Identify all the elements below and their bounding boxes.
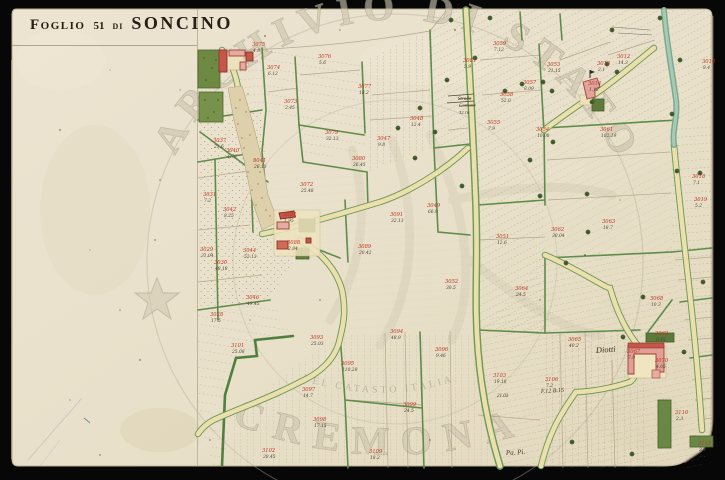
- parcel-number: 3052: [445, 279, 458, 285]
- parcel-area: 31.04: [201, 254, 214, 259]
- parcel-area: 5.2: [695, 204, 702, 209]
- parcel-area: 1.95: [284, 219, 294, 224]
- parcel-number: 3097: [302, 387, 316, 393]
- tree-icon: [631, 454, 632, 455]
- parcel-number: 3099: [403, 402, 417, 408]
- parcel-number: 3087: [283, 212, 297, 218]
- parcel-number: 3095: [341, 361, 354, 367]
- parcel-number: 3069: [655, 331, 669, 337]
- parcel-number: 3070: [655, 358, 669, 364]
- parcel-area: 32.13: [391, 219, 404, 224]
- tree-icon: [446, 80, 447, 81]
- title-word-di: di: [112, 18, 123, 33]
- parcel-area: 2.1: [597, 68, 605, 73]
- scanned-map-page: ARCHIVIO DI STATO CREMONA DEL CATASTO IT…: [0, 0, 725, 480]
- parcel-area: 25.48: [300, 189, 314, 194]
- tree-icon: [450, 20, 451, 21]
- parcel-number: 3053: [547, 62, 561, 68]
- parcel-area: 9.46: [436, 354, 446, 359]
- parcel-area: 20.42: [358, 251, 372, 256]
- parcel-number: 3106: [545, 377, 559, 383]
- parcel-area: 7.9: [488, 127, 495, 132]
- parcel-number: 3075: [252, 42, 265, 48]
- parcel-area: 52.0: [501, 99, 511, 104]
- tree-icon: [702, 282, 703, 283]
- parcel-area: 24.5: [515, 293, 526, 298]
- parcel-area: 9.8: [378, 143, 385, 148]
- parcel-number: 3091: [390, 212, 403, 218]
- parcel-number: 3109: [369, 449, 383, 455]
- tree-icon: [571, 442, 572, 443]
- parcel-area: 2.3: [675, 417, 683, 422]
- parcel-area: 49.45: [246, 302, 260, 307]
- parcel-number: 3059: [493, 41, 507, 47]
- parcel-area: 5.6: [319, 61, 326, 66]
- tree-icon: [683, 352, 684, 353]
- parcel-area: 26.13: [253, 165, 267, 170]
- parcel-number: 3102: [262, 448, 275, 454]
- parcel-number: 3080: [352, 156, 366, 162]
- parcel-number: 3044: [243, 248, 256, 254]
- parcel-area: 32.13: [326, 137, 339, 142]
- parcel-area: 8.4: [703, 66, 710, 71]
- parcel-area: 19.18: [494, 380, 507, 385]
- handwritten-annotation: 32.16: [459, 110, 470, 115]
- tree-icon: [539, 196, 540, 197]
- parcel-area: 30.04: [552, 234, 565, 239]
- parcel-area: 102.19: [601, 134, 617, 139]
- parcel-number: 3076: [318, 54, 332, 60]
- tree-icon: [659, 18, 660, 19]
- tree-icon: [622, 337, 623, 338]
- parcel-number: 3040: [226, 148, 240, 154]
- parcel-area: 21.6: [213, 145, 224, 150]
- handwritten-annotation: Diotti: [594, 344, 616, 355]
- parcel-number: 3064: [515, 286, 528, 292]
- parcel-number: 3079: [325, 130, 339, 136]
- parcel-number: 3065: [568, 337, 581, 343]
- parcel-area: 25.03: [310, 342, 324, 347]
- parcel-area: 7.1: [693, 181, 700, 186]
- parcel-number: 3088: [287, 240, 301, 246]
- parcel-number: 3048: [410, 116, 424, 122]
- title-place-name: SONCINO: [131, 13, 233, 34]
- parcel-number: 3058: [500, 92, 514, 98]
- tree-icon: [679, 60, 680, 61]
- parcel-number: 3096: [435, 347, 449, 353]
- parcel-number: 3089: [358, 244, 372, 250]
- parcel-number: 3061: [600, 127, 613, 133]
- tree-icon: [542, 82, 543, 83]
- sheet-title: Foglio 51 di SONCINO: [30, 13, 233, 34]
- parcel-area: 0.45: [656, 338, 666, 343]
- handwritten-annotation: 21.03: [497, 394, 509, 399]
- parcel-number: 3019: [694, 197, 708, 203]
- parcel-number: 3047: [377, 136, 391, 142]
- parcel-area: 3.4: [699, 448, 706, 453]
- parcel-number: 3029: [200, 247, 214, 253]
- parcel-area: 18.2: [359, 91, 369, 96]
- parcel-number: 3101: [231, 343, 244, 349]
- parcel-area: 4.78: [226, 155, 237, 160]
- parcel-number: 3110: [675, 410, 689, 416]
- tree-icon: [587, 232, 588, 233]
- parcel-number: 3068: [650, 296, 664, 302]
- parcel-area: 40.2: [568, 344, 579, 349]
- parcel-area: 4.8: [252, 49, 260, 54]
- parcel-number: 3041: [253, 158, 266, 164]
- parcel-area: 17.5: [211, 319, 221, 324]
- parcel-number: 3093: [310, 335, 324, 341]
- tree-icon: [616, 72, 617, 73]
- parcel-area: 48.9: [390, 336, 401, 341]
- parcel-area: 10.3: [651, 303, 661, 308]
- tree-icon: [414, 158, 415, 159]
- parcel-number: 3037: [213, 138, 227, 144]
- parcel-area: 7.2: [204, 199, 211, 204]
- parcel-area: 8.09: [524, 87, 534, 92]
- tree-icon: [419, 108, 420, 109]
- parcel-number: 3081: [463, 58, 476, 64]
- parcel-area: 25.08: [231, 350, 245, 355]
- parcel-area: 2.84: [287, 247, 298, 252]
- parcel-area: 30.5: [446, 286, 456, 291]
- parcel-number: 3013: [597, 61, 611, 67]
- parcel-area: 48.18: [214, 267, 228, 272]
- parcel-area: 14.7: [303, 394, 313, 399]
- parcel-number: 3012: [617, 54, 630, 60]
- parcel-number: 3042: [223, 207, 236, 213]
- tree-icon: [671, 114, 672, 115]
- tree-icon: [461, 186, 462, 187]
- parcel-number: 3018: [692, 174, 706, 180]
- parcel-area: 18.2: [370, 456, 380, 461]
- tree-icon: [586, 194, 587, 195]
- parcel-number: 3067: [627, 349, 641, 355]
- parcel-area: 66.9: [428, 210, 438, 215]
- tree-icon: [591, 102, 592, 103]
- parcel-number: 3057: [523, 80, 537, 86]
- parcel-number: 3073: [284, 99, 298, 105]
- parcel-number: 3030: [214, 260, 228, 266]
- parcel-number: 3054: [536, 127, 549, 133]
- parcel-number: 3031: [203, 192, 216, 198]
- tree-icon: [642, 297, 643, 298]
- handwritten-annotation: Comune: [459, 103, 477, 109]
- parcel-number: 3103: [493, 373, 507, 379]
- parcel-area: 17.15: [314, 424, 327, 429]
- parcel-area: 8.25: [224, 214, 234, 219]
- cadastral-map: ARCHIVIO DI STATO CREMONA DEL CATASTO IT…: [0, 0, 725, 480]
- parcel-number: 3014: [588, 81, 601, 87]
- parcel-number: 3062: [551, 227, 564, 233]
- tree-icon: [676, 171, 677, 172]
- parcel-number: 3055: [487, 120, 500, 126]
- parcel-area: 5.9: [464, 65, 471, 70]
- parcel-number: 3112: [698, 441, 711, 447]
- title-word-foglio: Foglio: [30, 17, 85, 34]
- parcel-area: 2.45: [284, 106, 295, 111]
- parcel-area: 4.05: [655, 365, 666, 370]
- tree-icon: [552, 142, 553, 143]
- parcel-area: 7.12: [494, 48, 504, 53]
- parcel-area: 6.12: [268, 72, 278, 77]
- parcel-number: 3074: [267, 65, 280, 71]
- parcel-area: 1.12: [589, 88, 599, 93]
- handwritten-annotation: Pa. Pi.: [505, 448, 526, 457]
- handwritten-annotation: F.12 B.15: [540, 388, 564, 395]
- parcel-area: 110.28: [342, 368, 358, 373]
- tree-icon: [551, 91, 552, 92]
- parcel-number: 3010: [702, 59, 716, 65]
- parcel-number: 3098: [313, 417, 327, 423]
- parcel-area: 14.3: [618, 61, 628, 66]
- parcel-number: 3063: [602, 219, 616, 225]
- handwritten-annotation: Strada: [458, 97, 472, 102]
- parcel-area: 10.08: [537, 134, 550, 139]
- parcel-number: 3046: [246, 295, 260, 301]
- parcel-area: 24.5: [403, 409, 414, 414]
- parcel-number: 3028: [210, 312, 224, 318]
- parcel-number: 3049: [427, 203, 441, 209]
- parcel-area: 52.13: [244, 255, 257, 260]
- parcel-area: 21.15: [547, 69, 561, 74]
- parcel-area: 18.7: [603, 226, 613, 231]
- tree-icon: [565, 263, 566, 264]
- parcel-area: 12.4: [411, 123, 421, 128]
- parcel-number: 3077: [358, 84, 372, 90]
- parcel-area: 28.45: [262, 455, 276, 460]
- tree-icon: [397, 128, 398, 129]
- tree-icon: [611, 30, 612, 31]
- parcel-area: 26.45: [352, 163, 366, 168]
- tree-icon: [434, 132, 435, 133]
- parcel-area: 12.6: [497, 241, 507, 246]
- parcel-number: 3072: [300, 182, 313, 188]
- parcel-number: 3051: [496, 234, 509, 240]
- parcel-number: 3094: [390, 329, 403, 335]
- tree-icon: [529, 160, 530, 161]
- tree-icon: [489, 18, 490, 19]
- parcel-area: 7.9: [628, 356, 635, 361]
- title-sheet-number: 51: [93, 20, 104, 32]
